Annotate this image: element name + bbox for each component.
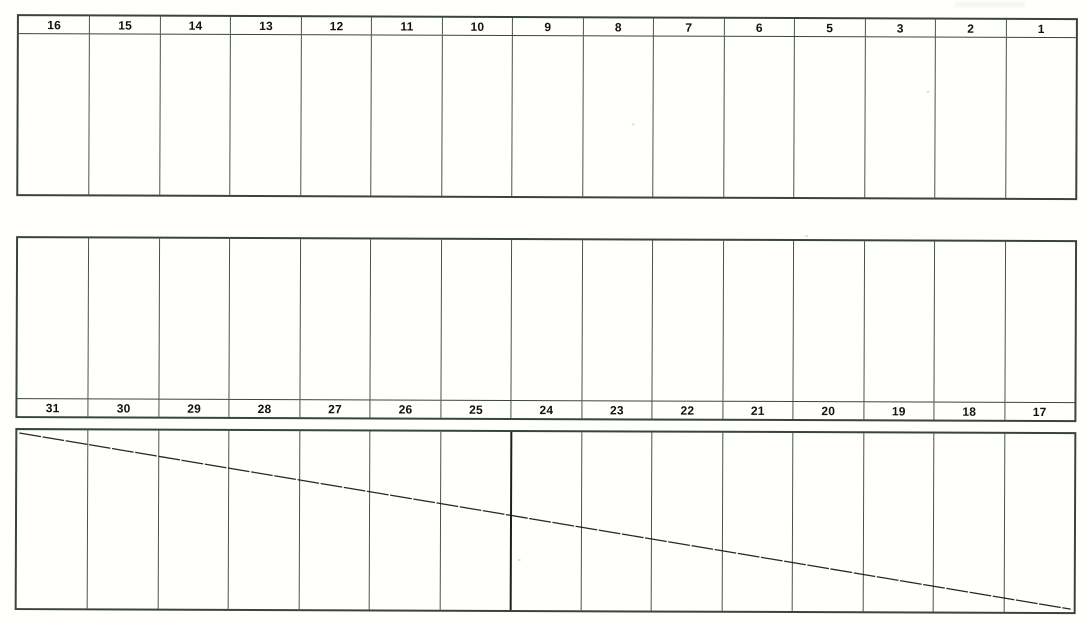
- blank-entry-cell: [934, 242, 1005, 402]
- blank-entry-cell: [17, 430, 88, 608]
- blank-entry-cell: [228, 431, 299, 609]
- blank-entry-cell: [299, 431, 370, 609]
- blank-entry-cell: [581, 240, 652, 400]
- grid-band-days-16-1: 1615141312111098765321: [16, 14, 1078, 200]
- grid-band-days-31-17: 313029282726252423222120191817: [15, 236, 1077, 422]
- blank-entry-cell: [89, 34, 160, 194]
- blank-entry-cell: [441, 36, 512, 196]
- day-number-cell: 31: [17, 399, 88, 416]
- day-number-cell: 16: [19, 16, 90, 33]
- scan-speckle: [927, 91, 930, 93]
- blank-entry-cell: [580, 432, 651, 610]
- blank-entry-cell: [370, 239, 441, 399]
- day-number-cell: 27: [299, 400, 370, 417]
- blank-entry-cell: [1004, 242, 1075, 402]
- day-number-cell: 10: [442, 18, 513, 35]
- day-number-cell: 29: [158, 400, 229, 417]
- scan-speckle: [805, 235, 808, 237]
- blank-entry-cell: [512, 36, 583, 196]
- blank-entry-cell: [369, 431, 440, 609]
- blank-entry-row-top: [18, 34, 1076, 198]
- blank-entry-cell: [371, 35, 442, 195]
- blank-entry-cell: [721, 433, 792, 611]
- blank-entry-cell: [793, 37, 864, 197]
- blank-entry-cell: [863, 241, 934, 401]
- day-number-cell: 9: [512, 18, 583, 35]
- day-number-cell: 12: [301, 17, 372, 34]
- blank-entry-cell: [933, 434, 1004, 612]
- blank-entry-cell: [652, 241, 723, 401]
- day-number-cell: 21: [722, 402, 793, 419]
- blank-entry-cell: [18, 34, 89, 194]
- day-number-cell: 6: [724, 19, 795, 36]
- blank-entry-cell: [651, 433, 722, 611]
- day-number-cell: 13: [230, 17, 301, 34]
- day-number-cell: 2: [935, 20, 1006, 37]
- blank-entry-cell: [723, 37, 794, 197]
- blank-entry-cell: [300, 35, 371, 195]
- day-number-cell: 8: [583, 18, 654, 35]
- blank-entry-cell: [510, 432, 581, 610]
- blank-entry-cell: [1003, 434, 1074, 612]
- blank-entry-cell: [1005, 38, 1076, 198]
- day-number-cell: 7: [653, 19, 724, 36]
- day-number-cell: 30: [88, 399, 159, 416]
- form-grid: 1615141312111098765321 31302928272625242…: [0, 0, 1085, 625]
- blank-entry-cell: [793, 241, 864, 401]
- day-number-cell: 1: [1005, 20, 1076, 37]
- blank-entry-cell: [864, 37, 935, 197]
- blank-entry-cell: [159, 35, 230, 195]
- day-number-cell: 5: [794, 19, 865, 36]
- day-number-cell: 23: [581, 401, 652, 418]
- blank-entry-cell: [440, 240, 511, 400]
- grid-band-struck: [15, 428, 1077, 614]
- scan-speckle: [518, 559, 521, 561]
- blank-entry-cell: [862, 433, 933, 611]
- day-number-cell: 26: [370, 400, 441, 417]
- blank-entry-cell: [722, 241, 793, 401]
- day-number-cell: 28: [229, 400, 300, 417]
- day-number-cell: 14: [160, 17, 231, 34]
- blank-entry-cell: [158, 431, 229, 609]
- blank-entry-cell: [652, 37, 723, 197]
- day-number-cell: 20: [793, 402, 864, 419]
- day-number-cell: 15: [89, 16, 160, 33]
- blank-entry-cell: [934, 38, 1005, 198]
- day-number-cell: 24: [511, 401, 582, 418]
- blank-entry-cell: [88, 238, 159, 398]
- day-number-cell: 18: [933, 403, 1004, 420]
- blank-entry-cell: [17, 238, 88, 398]
- blank-entry-cell: [582, 36, 653, 196]
- day-number-cell: 19: [863, 402, 934, 419]
- blank-entry-cell: [792, 433, 863, 611]
- blank-entry-row-middle: [17, 238, 1075, 402]
- blank-entry-cell: [230, 35, 301, 195]
- blank-entry-cell: [158, 239, 229, 399]
- day-number-cell: 11: [371, 17, 442, 34]
- day-number-cell: 22: [652, 402, 723, 419]
- day-number-cell: 3: [864, 19, 935, 36]
- blank-entry-row-bottom: [17, 430, 1075, 612]
- scanned-form-sheet: 1615141312111098765321 31302928272625242…: [0, 0, 1085, 625]
- day-number-cell: 25: [440, 401, 511, 418]
- day-number-header-row-bottom: 313029282726252423222120191817: [17, 398, 1074, 420]
- blank-entry-cell: [439, 432, 510, 610]
- scan-speckle: [632, 123, 635, 125]
- day-number-cell: 17: [1004, 403, 1075, 420]
- blank-entry-cell: [87, 430, 158, 608]
- blank-entry-cell: [299, 239, 370, 399]
- blank-entry-cell: [229, 239, 300, 399]
- blank-entry-cell: [511, 240, 582, 400]
